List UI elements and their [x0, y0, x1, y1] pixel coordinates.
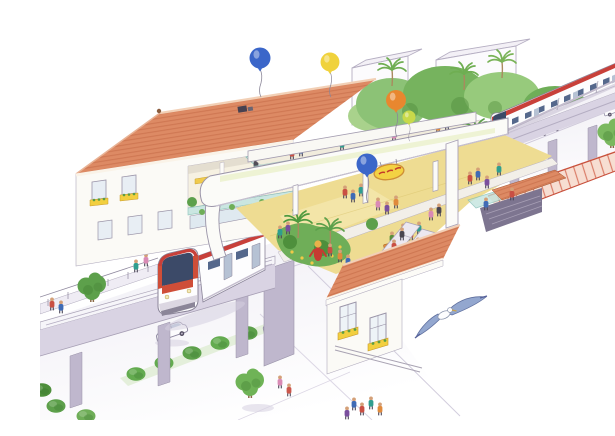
corner-bush: [47, 399, 66, 413]
station-illustration: Elevated light-rail transit station with…: [40, 16, 615, 420]
canopy-pillar: [446, 140, 458, 228]
median-bush: [127, 367, 146, 381]
front-train-cab: [158, 249, 198, 316]
seagull: [415, 296, 487, 338]
median-bush: [211, 336, 230, 350]
median-bush: [183, 346, 202, 360]
walkway-person: [144, 254, 149, 267]
blue-balloon: [250, 48, 271, 98]
guideway-column: [70, 352, 82, 408]
walkway-person: [59, 301, 64, 314]
walkway-person: [134, 260, 139, 273]
platform-planter: [366, 218, 378, 230]
illustration-canvas: [40, 16, 615, 420]
headlight: [165, 295, 169, 299]
terrace-planter: [187, 197, 197, 207]
roof-finial: [157, 109, 161, 113]
guideway-column: [158, 322, 170, 386]
headlight: [187, 289, 191, 293]
